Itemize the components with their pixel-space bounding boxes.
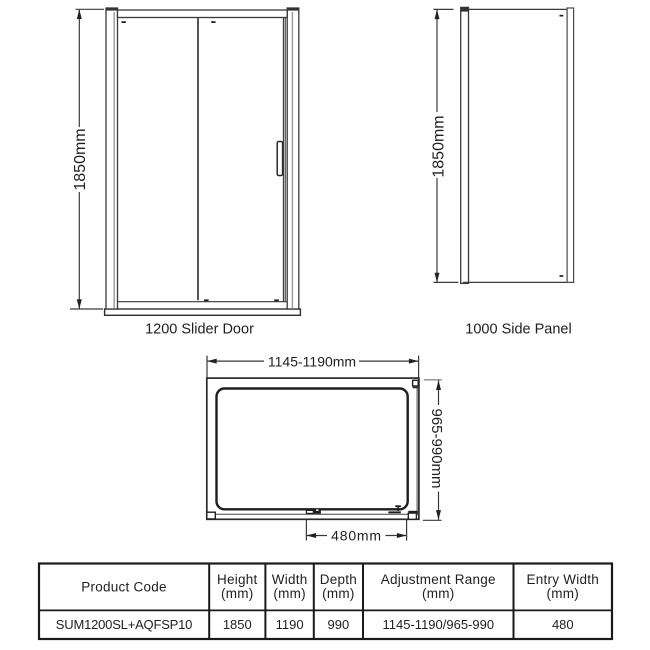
svg-text:480: 480: [552, 617, 574, 632]
svg-text:1200 Slider Door: 1200 Slider Door: [145, 322, 254, 338]
svg-text:(mm): (mm): [273, 586, 305, 601]
svg-text:Entry Width: Entry Width: [527, 572, 600, 587]
svg-text:1145-1190/965-990: 1145-1190/965-990: [383, 617, 495, 632]
svg-text:SUM1200SL+AQFSP10: SUM1200SL+AQFSP10: [56, 617, 192, 632]
svg-text:1850mm: 1850mm: [72, 128, 89, 190]
svg-text:1850: 1850: [223, 617, 252, 632]
svg-text:990: 990: [328, 617, 350, 632]
svg-text:Adjustment Range: Adjustment Range: [381, 572, 496, 587]
svg-text:1850mm: 1850mm: [431, 115, 448, 177]
svg-text:(mm): (mm): [547, 586, 579, 601]
svg-text:1190: 1190: [276, 617, 304, 632]
svg-text:1000 Side Panel: 1000 Side Panel: [465, 322, 571, 338]
svg-text:Depth: Depth: [320, 572, 357, 587]
svg-text:(mm): (mm): [322, 586, 354, 601]
svg-text:1145-1190mm: 1145-1190mm: [268, 353, 356, 369]
svg-text:(mm): (mm): [422, 586, 454, 601]
svg-text:Product Code: Product Code: [81, 580, 167, 595]
svg-text:Height: Height: [217, 572, 258, 587]
svg-text:480mm: 480mm: [331, 528, 382, 544]
svg-text:Width: Width: [272, 572, 308, 587]
svg-text:(mm): (mm): [221, 586, 253, 601]
svg-text:965-990mm: 965-990mm: [428, 408, 445, 488]
